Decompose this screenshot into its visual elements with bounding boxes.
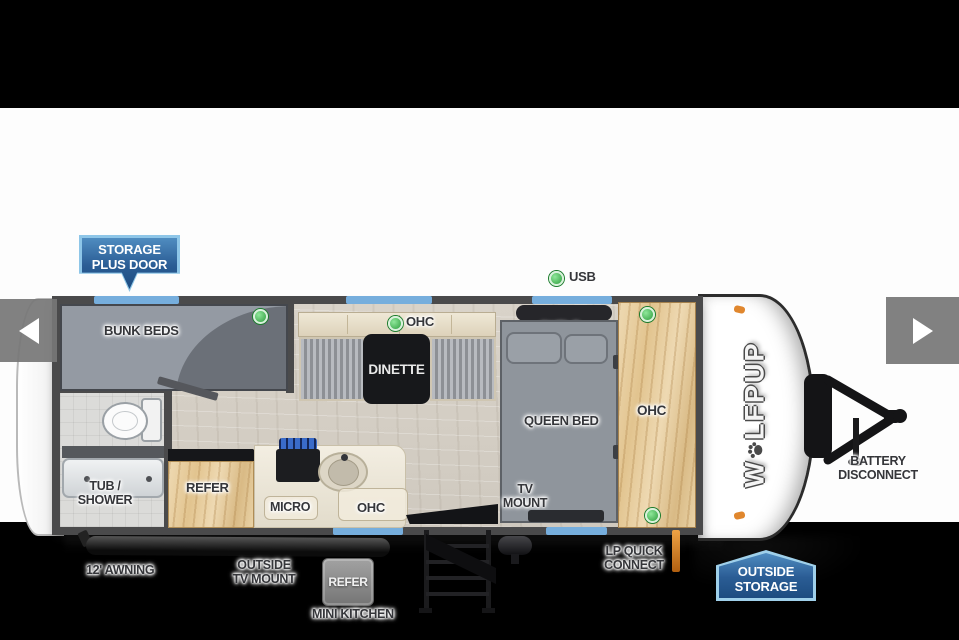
usb-label: USB	[569, 270, 596, 284]
lp-quick-connect-port	[672, 530, 680, 572]
dinette-bench-right	[430, 337, 496, 401]
prev-arrow-button[interactable]	[0, 299, 57, 362]
floorplan-canvas: BUNK BEDS TUB / SHOWER REFER MICRO OHC	[0, 108, 959, 522]
tv-mount-label: TV MOUNT	[496, 483, 554, 510]
dinette-ohc-label: OHC	[406, 315, 434, 329]
faucet-knob-icon	[146, 476, 152, 482]
grill-stem	[511, 554, 519, 564]
queen-bed-label: QUEEN BED	[524, 414, 599, 428]
left-arrow-icon	[19, 318, 39, 344]
window-top-bed	[532, 296, 612, 304]
clearance-light-icon	[733, 305, 745, 314]
pillow-icon	[564, 334, 608, 364]
usb-indicator-icon	[549, 271, 564, 286]
tub-edge	[62, 446, 164, 458]
bunk-beds-label: BUNK BEDS	[104, 324, 179, 338]
battery-disconnect-label: BATTERY DISCONNECT	[826, 455, 930, 482]
awning-label: 12' AWNING	[86, 564, 154, 578]
dinette-bench-left	[299, 337, 365, 401]
green-indicator-icon	[253, 309, 268, 324]
micro-label: MICRO	[270, 501, 310, 515]
faucet-icon	[341, 454, 348, 461]
mini-kitchen-label: MINI KITCHEN	[312, 608, 394, 622]
storage-plus-door-badge: STORAGE PLUS DOOR	[79, 235, 180, 292]
green-indicator-icon	[645, 508, 660, 523]
clearance-light-icon	[733, 511, 745, 520]
window-top-bunk	[94, 296, 179, 304]
window-bottom-kitchen	[333, 527, 403, 535]
window-bottom-bed	[546, 527, 607, 535]
toilet-icon	[102, 402, 148, 440]
awning-roller	[86, 536, 390, 557]
outside-refer-box: REFER	[322, 558, 374, 606]
green-indicator-icon	[388, 316, 403, 331]
pillow-icon	[506, 332, 562, 364]
next-arrow-button[interactable]	[886, 297, 959, 364]
window-top-dinette	[346, 296, 432, 304]
grill-icon	[498, 536, 532, 555]
stove	[276, 449, 320, 482]
outside-tv-mount-label: OUTSIDE TV MOUNT	[228, 559, 300, 586]
green-indicator-icon	[640, 307, 655, 322]
tv-on-wall	[528, 510, 604, 522]
entry-steps	[412, 528, 504, 618]
dinette-table: DINETTE	[363, 334, 430, 404]
floorplan-screenshot: BUNK BEDS TUB / SHOWER REFER MICRO OHC	[0, 0, 959, 640]
sink-basin	[328, 459, 359, 486]
kitchen-ohc-label: OHC	[357, 501, 385, 515]
tub-shower-label: TUB / SHOWER	[72, 480, 138, 507]
right-arrow-icon	[913, 318, 933, 344]
dinette-label: DINETTE	[368, 362, 424, 377]
shelf	[516, 305, 612, 321]
lp-quick-connect-label: LP QUICK CONNECT	[600, 545, 668, 572]
front-ohc-label: OHC	[637, 404, 666, 419]
refer-label: REFER	[186, 481, 229, 495]
